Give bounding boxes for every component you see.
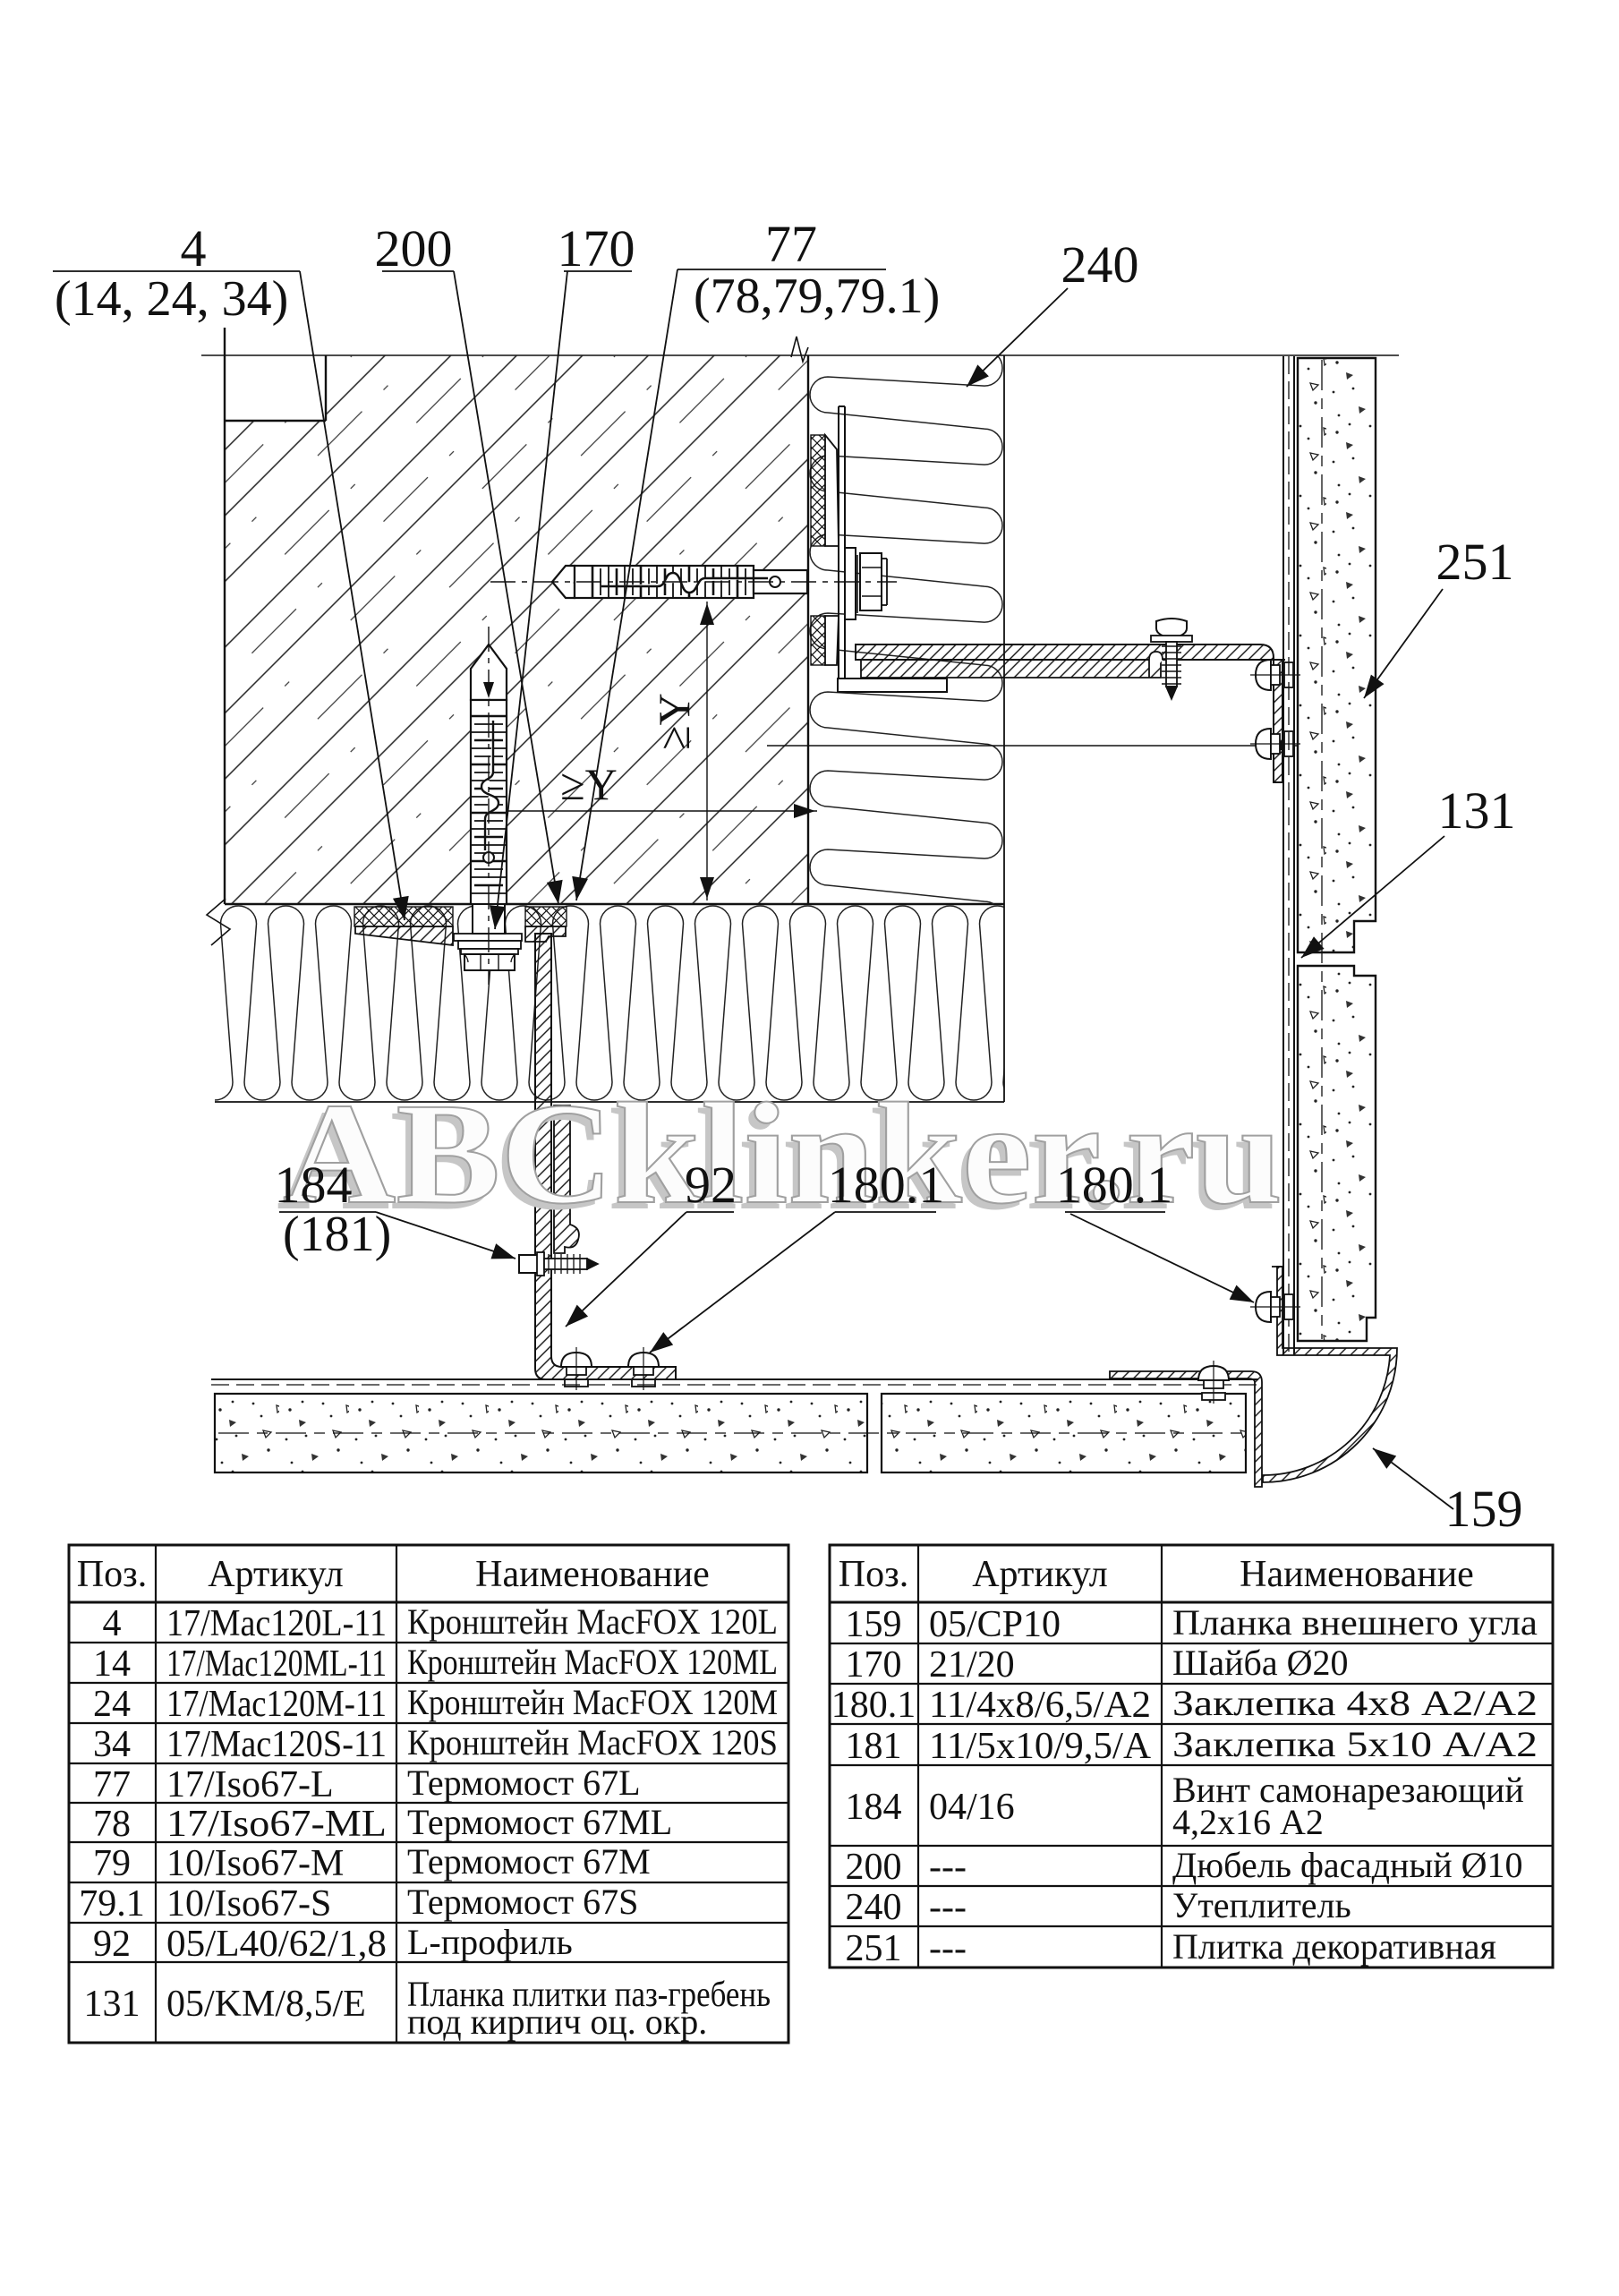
svg-text:Планка внешнего угла: Планка внешнего угла	[1172, 1602, 1538, 1643]
svg-text:14: 14	[93, 1643, 131, 1685]
svg-text:4,2x16 А2: 4,2x16 А2	[1172, 1802, 1324, 1842]
svg-text:05/L40/62/1,8: 05/L40/62/1,8	[166, 1924, 387, 1965]
svg-text:(181): (181)	[283, 1207, 391, 1262]
svg-text:17/Mac120M-11: 17/Mac120M-11	[166, 1684, 387, 1725]
svg-text:180.1: 180.1	[828, 1156, 945, 1214]
svg-text:Термомост 67L: Термомост 67L	[407, 1763, 641, 1803]
svg-text:(14, 24, 34): (14, 24, 34)	[55, 271, 288, 327]
svg-text:---: ---	[929, 1928, 967, 1969]
svg-text:Термомост 67S: Термомост 67S	[407, 1882, 638, 1922]
svg-text:Дюбель фасадный Ø10: Дюбель фасадный Ø10	[1172, 1845, 1523, 1885]
svg-text:159: 159	[846, 1604, 902, 1645]
svg-text:4: 4	[103, 1603, 122, 1644]
svg-text:17/Mac120ML-11: 17/Mac120ML-11	[166, 1643, 387, 1685]
svg-text:77: 77	[765, 215, 817, 273]
svg-text:200: 200	[375, 219, 453, 277]
svg-text:251: 251	[846, 1928, 902, 1969]
svg-text:Поз.: Поз.	[839, 1554, 908, 1595]
svg-text:Наименование: Наименование	[1240, 1554, 1474, 1595]
svg-text:79.1: 79.1	[79, 1883, 145, 1925]
svg-text:≥Y: ≥Y	[560, 759, 618, 809]
svg-text:92: 92	[685, 1156, 737, 1214]
svg-text:10/Iso67-S: 10/Iso67-S	[166, 1883, 331, 1925]
svg-text:---: ---	[929, 1847, 967, 1888]
svg-text:4: 4	[181, 219, 207, 277]
svg-text:05/CP10: 05/CP10	[929, 1604, 1061, 1645]
svg-text:10/Iso67-M: 10/Iso67-M	[166, 1843, 344, 1884]
svg-text:200: 200	[846, 1847, 902, 1888]
svg-text:Кронштейн MacFOX 120S: Кронштейн MacFOX 120S	[407, 1722, 778, 1763]
svg-text:Артикул: Артикул	[208, 1554, 344, 1595]
svg-text:21/20: 21/20	[929, 1644, 1015, 1686]
svg-text:240: 240	[1061, 235, 1139, 294]
svg-text:170: 170	[558, 219, 635, 277]
svg-text:181: 181	[846, 1726, 902, 1767]
svg-text:180.1: 180.1	[1056, 1156, 1173, 1214]
svg-text:Кронштейн MacFOX 120M: Кронштейн MacFOX 120M	[407, 1682, 778, 1722]
svg-text:79: 79	[93, 1843, 131, 1884]
svg-text:24: 24	[93, 1684, 131, 1725]
svg-text:34: 34	[93, 1724, 131, 1765]
svg-text:240: 240	[846, 1887, 902, 1928]
svg-text:Кронштейн MacFOX 120L: Кронштейн MacFOX 120L	[407, 1601, 778, 1642]
svg-text:(78,79,79.1): (78,79,79.1)	[694, 269, 940, 324]
svg-text:184: 184	[846, 1787, 902, 1828]
svg-text:131: 131	[1438, 781, 1516, 840]
svg-text:180.1: 180.1	[831, 1685, 916, 1726]
svg-text:под кирпич оц. окр.: под кирпич оц. окр.	[407, 2002, 707, 2042]
svg-text:Поз.: Поз.	[77, 1554, 147, 1595]
svg-text:251: 251	[1436, 533, 1514, 591]
svg-text:---: ---	[929, 1887, 967, 1928]
svg-text:17/Iso67-ML: 17/Iso67-ML	[166, 1804, 387, 1845]
svg-text:Заклепка 4x8 А2/А2: Заклепка 4x8 А2/А2	[1172, 1683, 1538, 1723]
svg-text:159: 159	[1445, 1480, 1523, 1538]
svg-text:04/16: 04/16	[929, 1787, 1015, 1828]
svg-text:Наименование: Наименование	[475, 1554, 710, 1595]
svg-text:170: 170	[846, 1644, 902, 1686]
svg-text:05/KM/8,5/E: 05/KM/8,5/E	[166, 1984, 366, 2025]
svg-text:184: 184	[275, 1156, 353, 1214]
svg-text:Артикул: Артикул	[972, 1554, 1108, 1595]
svg-text:Термомост 67ML: Термомост 67ML	[407, 1802, 672, 1842]
svg-text:Термомост 67M: Термомост 67M	[407, 1841, 651, 1882]
svg-text:Кронштейн MacFOX 120ML: Кронштейн MacFOX 120ML	[407, 1642, 778, 1682]
svg-text:131: 131	[84, 1984, 141, 2025]
svg-text:17/Mac120S-11: 17/Mac120S-11	[166, 1724, 387, 1765]
svg-text:17/Mac120L-11: 17/Mac120L-11	[166, 1603, 387, 1644]
svg-text:11/5x10/9,5/А: 11/5x10/9,5/А	[929, 1726, 1152, 1767]
svg-text:78: 78	[93, 1804, 131, 1845]
svg-text:77: 77	[93, 1764, 131, 1805]
svg-text:92: 92	[93, 1924, 131, 1965]
svg-text:L-профиль: L-профиль	[407, 1922, 573, 1962]
svg-text:Утеплитель: Утеплитель	[1172, 1885, 1351, 1925]
svg-text:Шайба Ø20: Шайба Ø20	[1172, 1643, 1349, 1683]
svg-text:≥Y: ≥Y	[649, 693, 699, 750]
svg-text:Заклепка 5x10 А/А2: Заклепка 5x10 А/А2	[1172, 1724, 1538, 1764]
svg-text:11/4x8/6,5/A2: 11/4x8/6,5/A2	[929, 1685, 1151, 1726]
svg-text:17/Iso67-L: 17/Iso67-L	[166, 1764, 334, 1805]
svg-text:Плитка декоративная: Плитка декоративная	[1172, 1926, 1496, 1967]
